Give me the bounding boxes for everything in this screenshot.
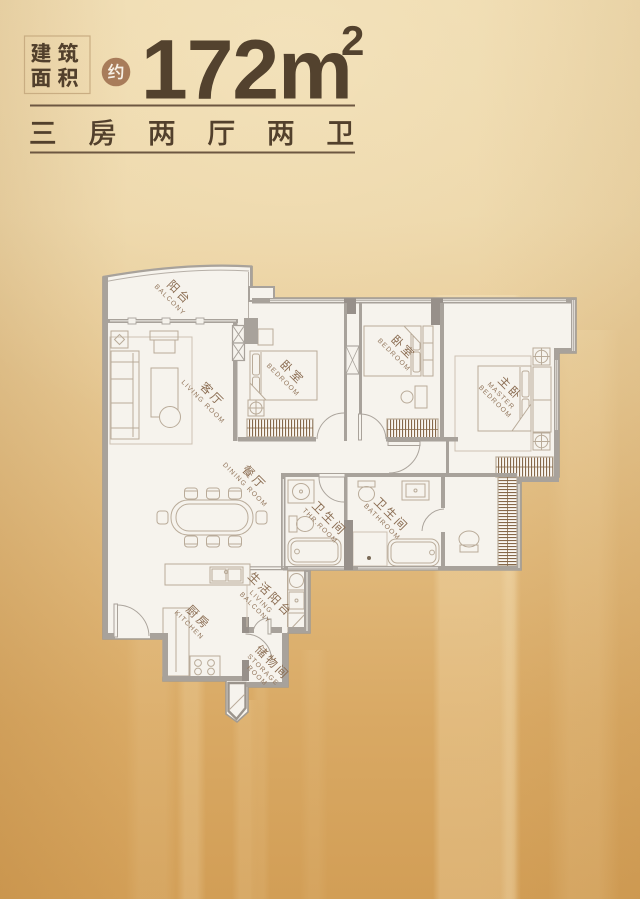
svg-text:2: 2 [341,17,364,64]
svg-text:172m: 172m [141,23,352,117]
